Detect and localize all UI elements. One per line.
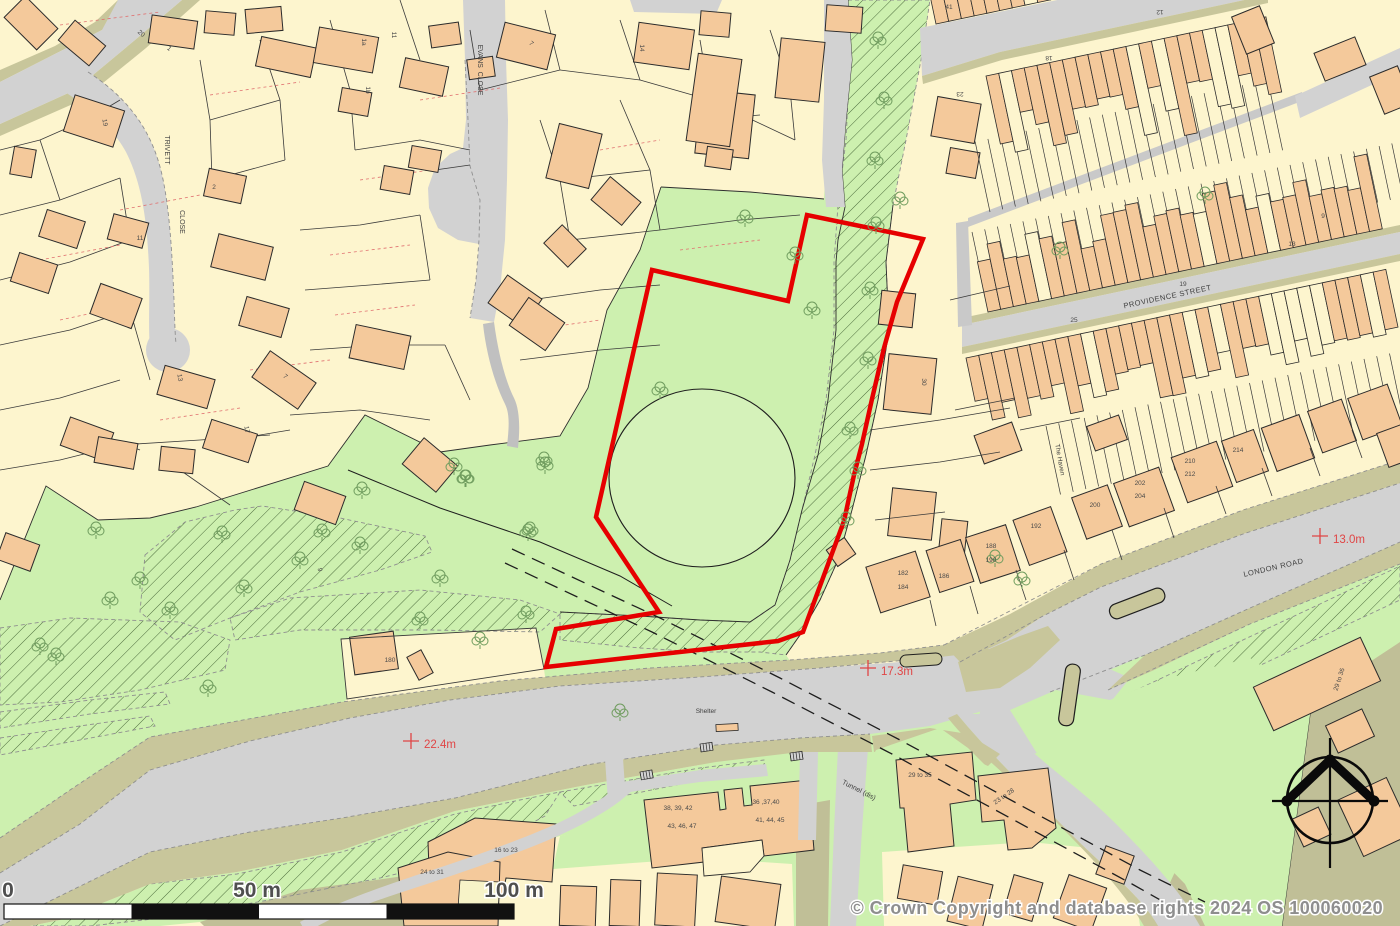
svg-text:184: 184 [898,584,909,591]
svg-text:24 to 31: 24 to 31 [420,869,444,876]
svg-text:17.3m: 17.3m [881,666,913,678]
svg-text:9: 9 [1321,213,1325,220]
svg-text:41, 44, 45: 41, 44, 45 [756,817,785,824]
svg-text:210: 210 [1185,458,1196,465]
svg-text:16 to 23: 16 to 23 [494,847,518,854]
svg-text:11: 11 [390,32,397,39]
svg-text:186: 186 [939,573,950,580]
svg-text:CLOSE: CLOSE [178,210,185,234]
svg-text:29 to 35: 29 to 35 [908,772,932,779]
svg-text:18: 18 [1045,54,1053,61]
svg-text:0: 0 [2,879,14,902]
svg-text:11: 11 [137,235,144,242]
svg-text:2: 2 [212,184,216,191]
svg-text:38, 39, 42: 38, 39, 42 [664,805,693,812]
svg-text:13: 13 [1288,241,1296,248]
svg-text:25: 25 [1070,317,1078,324]
svg-text:188: 188 [986,543,997,550]
svg-text:212: 212 [1185,471,1196,478]
svg-text:30: 30 [920,378,927,386]
svg-text:41: 41 [945,4,953,11]
svg-text:EVANS CLOSE: EVANS CLOSE [476,45,483,96]
svg-text:202: 202 [1135,480,1146,487]
svg-text:200: 200 [1090,502,1101,509]
svg-text:1a: 1a [360,38,367,46]
svg-text:1b: 1b [364,86,371,94]
svg-text:23: 23 [956,90,964,97]
svg-text:204: 204 [1135,493,1146,500]
svg-text:36 ,37,40: 36 ,37,40 [752,799,779,806]
svg-text:13.0m: 13.0m [1333,534,1365,546]
svg-text:182: 182 [898,570,909,577]
svg-text:100 m: 100 m [484,879,544,902]
svg-text:Shelter: Shelter [696,708,717,715]
svg-text:190: 190 [986,557,997,564]
svg-text:214: 214 [1233,447,1244,454]
svg-text:© Crown Copyright and database: © Crown Copyright and database rights 20… [851,898,1383,918]
svg-text:12: 12 [1156,8,1164,15]
svg-text:192: 192 [1031,523,1042,530]
svg-text:22.4m: 22.4m [424,739,456,751]
svg-text:TRIVETT: TRIVETT [163,135,170,165]
svg-text:14: 14 [638,44,645,52]
svg-text:19: 19 [1179,281,1187,288]
svg-text:50 m: 50 m [233,879,281,902]
svg-text:180: 180 [385,657,396,664]
svg-text:43, 46, 47: 43, 46, 47 [668,823,697,830]
